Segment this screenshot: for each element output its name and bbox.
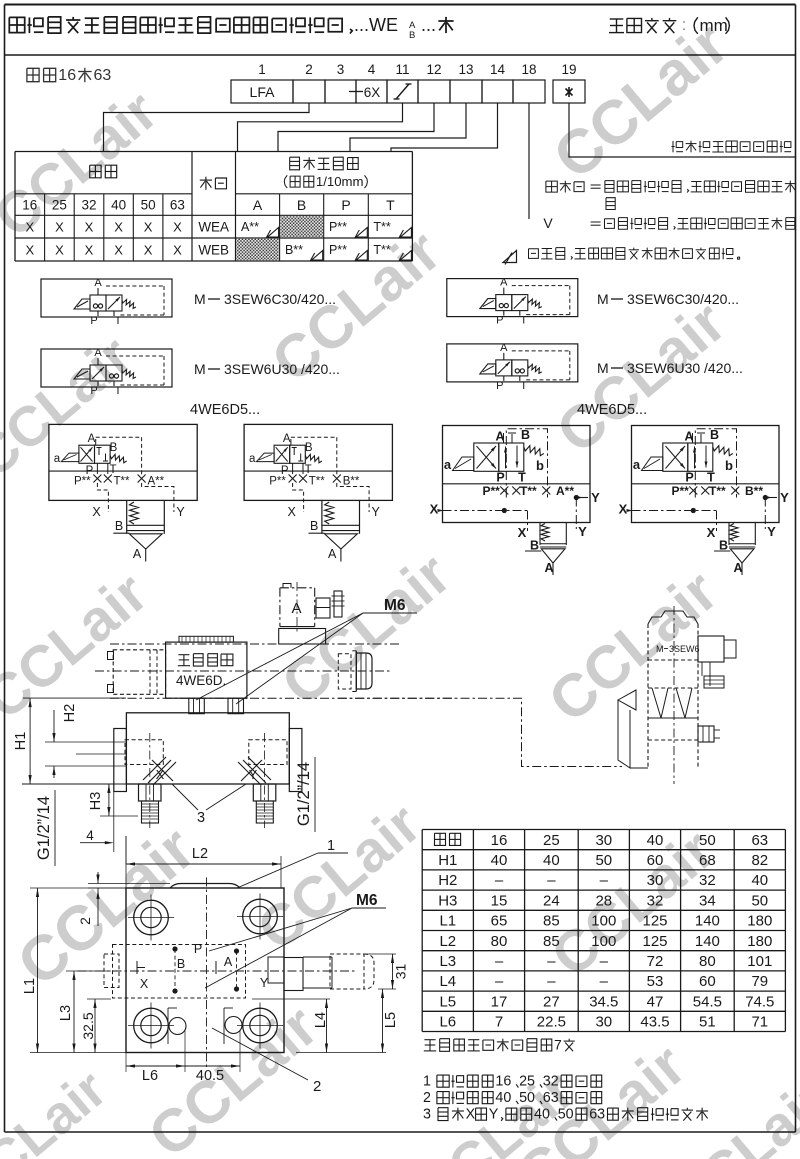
svg-text:68: 68	[699, 852, 716, 869]
svg-text:P: P	[194, 942, 202, 956]
svg-text:12: 12	[426, 62, 441, 77]
svg-text:79: 79	[751, 973, 768, 990]
svg-text:X: X	[518, 525, 527, 540]
svg-text:P**: P**	[269, 476, 286, 488]
svg-text:25: 25	[52, 198, 67, 213]
svg-text:...: ...	[421, 15, 436, 35]
svg-text:Y: Y	[249, 767, 258, 782]
svg-text:30: 30	[647, 872, 664, 889]
svg-text:40: 40	[495, 1090, 511, 1106]
svg-text:WEA: WEA	[198, 220, 229, 235]
svg-text:T: T	[115, 315, 122, 327]
svg-text:4WE6D5...: 4WE6D5...	[577, 402, 647, 418]
svg-text:16: 16	[491, 832, 508, 849]
svg-text:16: 16	[495, 1074, 511, 1090]
svg-text:15: 15	[491, 892, 508, 909]
svg-text:P**: P**	[483, 484, 501, 498]
svg-text:CCLair: CCLair	[0, 560, 160, 732]
svg-text:X: X	[92, 505, 101, 519]
svg-text:51: 51	[699, 1014, 716, 1031]
svg-text:L6: L6	[142, 1068, 158, 1084]
svg-text:3: 3	[197, 810, 205, 826]
svg-text:74.5: 74.5	[745, 993, 774, 1010]
svg-text:A: A	[291, 600, 301, 617]
svg-text:40.5: 40.5	[196, 1068, 224, 1084]
svg-text:H3: H3	[88, 792, 104, 811]
svg-text:H3: H3	[438, 892, 457, 909]
svg-text:25: 25	[519, 1074, 535, 1090]
svg-text:A: A	[94, 347, 102, 359]
svg-text:B**: B**	[343, 476, 360, 488]
svg-text:3SEW6C30/420...: 3SEW6C30/420...	[627, 291, 739, 307]
svg-text:50: 50	[519, 1090, 535, 1106]
svg-text:27: 27	[543, 993, 560, 1010]
svg-text:CCLair: CCLair	[0, 1059, 118, 1159]
svg-text:65: 65	[491, 913, 508, 930]
svg-text:4: 4	[86, 828, 94, 843]
svg-text:B: B	[521, 428, 530, 442]
svg-text:T: T	[305, 464, 312, 476]
svg-text:A: A	[94, 277, 102, 289]
svg-text:Y: Y	[767, 524, 776, 539]
svg-text:60: 60	[699, 973, 716, 990]
svg-text:A: A	[500, 342, 508, 354]
svg-text:32: 32	[699, 872, 716, 889]
svg-text:P**: P**	[329, 220, 347, 234]
svg-text:T: T	[707, 471, 715, 485]
svg-text:40: 40	[543, 852, 560, 869]
svg-text:X: X	[25, 243, 34, 258]
svg-text:L3: L3	[58, 1005, 74, 1021]
svg-text:X: X	[619, 502, 628, 517]
svg-text:X: X	[114, 220, 123, 235]
svg-text:CCLair: CCLair	[541, 9, 741, 193]
svg-text:Y: Y	[591, 490, 600, 505]
svg-text:–: –	[495, 872, 504, 889]
svg-text:X: X	[85, 220, 94, 235]
svg-text:3: 3	[337, 62, 345, 77]
svg-text:3: 3	[423, 1107, 431, 1123]
svg-text:25: 25	[543, 832, 560, 849]
svg-text:30: 30	[595, 832, 612, 849]
svg-text:L4: L4	[313, 1012, 329, 1028]
svg-text:T**: T**	[709, 484, 726, 498]
svg-text:M: M	[194, 291, 206, 307]
svg-text:a: a	[444, 457, 452, 472]
svg-text:2: 2	[313, 1078, 321, 1095]
svg-text:...WE: ...WE	[354, 15, 398, 35]
svg-text:34: 34	[699, 892, 716, 909]
svg-text:P: P	[496, 380, 503, 392]
svg-text:125: 125	[642, 913, 667, 930]
svg-text:X: X	[173, 243, 182, 258]
svg-text:L6: L6	[439, 1014, 456, 1031]
svg-text:X: X	[144, 220, 153, 235]
svg-text:M: M	[597, 360, 609, 376]
svg-text:M: M	[656, 644, 664, 654]
svg-text:80: 80	[699, 953, 716, 970]
svg-text:CCLair: CCLair	[544, 288, 738, 466]
svg-text:40: 40	[647, 832, 664, 849]
svg-text:P**: P**	[672, 484, 690, 498]
svg-text:A: A	[544, 561, 553, 575]
svg-text:40: 40	[111, 198, 126, 213]
svg-text:mm: mm	[700, 16, 728, 35]
svg-text:M: M	[597, 291, 609, 307]
svg-text:B**: B**	[745, 484, 763, 498]
svg-text:G1/2”/14: G1/2”/14	[35, 796, 53, 860]
svg-text:T**: T**	[309, 476, 326, 488]
svg-text:P: P	[685, 471, 693, 485]
svg-text:L3: L3	[439, 953, 456, 970]
svg-text:7: 7	[495, 1014, 503, 1031]
svg-text:–: –	[495, 973, 504, 990]
svg-text:H1: H1	[438, 852, 457, 869]
svg-text:140: 140	[695, 933, 720, 950]
svg-text:X: X	[140, 977, 149, 991]
svg-text:72: 72	[647, 953, 664, 970]
svg-text:32: 32	[543, 1074, 559, 1090]
svg-text:A: A	[328, 547, 337, 561]
svg-text:B: B	[409, 30, 415, 41]
svg-text:b: b	[725, 458, 733, 473]
svg-text:63: 63	[751, 832, 768, 849]
svg-text:CCLair: CCLair	[0, 323, 143, 489]
svg-text:A**: A**	[241, 220, 259, 234]
svg-text:L4: L4	[439, 973, 456, 990]
svg-text:50: 50	[558, 1107, 574, 1123]
svg-text:100: 100	[591, 913, 616, 930]
svg-text:A: A	[500, 277, 508, 289]
svg-text:54.5: 54.5	[693, 993, 722, 1010]
svg-text:L2: L2	[192, 846, 208, 862]
svg-text:X: X	[85, 243, 94, 258]
svg-text:X: X	[55, 220, 64, 235]
svg-text:40: 40	[751, 872, 768, 889]
svg-text:L1: L1	[439, 913, 456, 930]
svg-text:82: 82	[751, 852, 768, 869]
svg-text:A: A	[283, 433, 291, 445]
svg-text:T**: T**	[114, 476, 131, 488]
svg-text:53: 53	[647, 973, 664, 990]
svg-text:P: P	[496, 471, 504, 485]
svg-text:Y: Y	[489, 1107, 499, 1123]
svg-text:Y: Y	[176, 505, 185, 519]
svg-text:24: 24	[543, 892, 560, 909]
svg-text:B: B	[297, 197, 306, 213]
svg-text:H1: H1	[13, 732, 29, 751]
svg-text:28: 28	[595, 892, 612, 909]
svg-text:X: X	[707, 525, 716, 540]
svg-text:2: 2	[305, 62, 313, 77]
svg-text:4: 4	[368, 62, 376, 77]
svg-text:T**: T**	[373, 220, 391, 234]
svg-text:Y: Y	[578, 524, 587, 539]
svg-text:–: –	[600, 953, 609, 970]
svg-text:63: 63	[543, 1090, 559, 1106]
svg-text:T: T	[115, 385, 122, 397]
svg-text:–: –	[547, 973, 556, 990]
svg-text:X: X	[466, 1107, 476, 1123]
svg-text:3SEW6U30 /420...: 3SEW6U30 /420...	[627, 360, 743, 376]
svg-text:A: A	[253, 197, 263, 213]
svg-text:1: 1	[423, 1074, 431, 1090]
svg-text:T: T	[109, 464, 116, 476]
svg-text:A: A	[133, 547, 142, 561]
svg-text:14: 14	[490, 62, 506, 77]
svg-text:WEB: WEB	[198, 243, 229, 258]
svg-text:X: X	[144, 243, 153, 258]
svg-text:Y: Y	[780, 490, 789, 505]
svg-text:1/10mm: 1/10mm	[316, 174, 364, 189]
svg-text:X: X	[173, 220, 182, 235]
svg-text:34.5: 34.5	[589, 993, 618, 1010]
svg-text:P: P	[90, 385, 97, 397]
svg-text:L2: L2	[439, 933, 456, 950]
svg-text:B: B	[115, 519, 123, 533]
svg-text:b: b	[536, 458, 544, 473]
svg-text:L5: L5	[439, 993, 456, 1010]
svg-text:X: X	[25, 220, 34, 235]
svg-text:16: 16	[58, 67, 76, 84]
svg-text:63: 63	[170, 198, 185, 213]
svg-text:H2: H2	[438, 872, 457, 889]
svg-text:50: 50	[699, 832, 716, 849]
svg-text:50: 50	[141, 198, 156, 213]
svg-text:40: 40	[491, 852, 508, 869]
svg-text:B: B	[310, 519, 318, 533]
svg-text:180: 180	[747, 913, 772, 930]
svg-text:1: 1	[327, 838, 335, 854]
svg-text:X: X	[55, 243, 64, 258]
svg-text:B: B	[177, 957, 185, 971]
svg-text:11: 11	[395, 62, 409, 77]
svg-text:50: 50	[595, 852, 612, 869]
svg-text:18: 18	[521, 62, 536, 77]
svg-text:125: 125	[642, 933, 667, 950]
svg-text:31: 31	[393, 964, 409, 980]
svg-text:P**: P**	[74, 476, 91, 488]
svg-text:30: 30	[595, 1014, 612, 1031]
svg-text:P: P	[341, 197, 350, 213]
svg-text:X: X	[430, 502, 439, 517]
svg-text:B**: B**	[285, 243, 303, 257]
svg-text:P: P	[90, 315, 97, 327]
svg-text:T: T	[520, 315, 527, 327]
svg-text:T: T	[518, 471, 526, 485]
svg-text:32: 32	[81, 198, 96, 213]
svg-text:4WE6D5...: 4WE6D5...	[190, 402, 260, 418]
svg-text:T**: T**	[520, 484, 537, 498]
svg-text:T**: T**	[373, 243, 391, 257]
svg-text:M: M	[194, 361, 206, 377]
svg-text:a: a	[249, 453, 256, 465]
svg-text:–: –	[600, 973, 609, 990]
svg-text:B: B	[530, 539, 539, 553]
svg-text:B: B	[719, 539, 728, 553]
svg-text:7: 7	[554, 1037, 562, 1053]
svg-text:A**: A**	[556, 484, 574, 498]
svg-text:63: 63	[589, 1107, 605, 1123]
svg-text:63: 63	[94, 67, 112, 84]
svg-text:V: V	[543, 215, 553, 231]
svg-text:X: X	[156, 767, 165, 782]
svg-text:T: T	[520, 380, 527, 392]
svg-text:2: 2	[77, 917, 93, 925]
svg-text:13: 13	[458, 62, 473, 77]
svg-text:50: 50	[751, 892, 768, 909]
svg-text:–: –	[547, 953, 556, 970]
svg-text:H2: H2	[62, 704, 78, 723]
svg-text:19: 19	[561, 62, 576, 77]
svg-text:3SEW6U30 /420...: 3SEW6U30 /420...	[224, 361, 340, 377]
svg-text:A: A	[733, 561, 742, 575]
svg-text:47: 47	[647, 993, 664, 1010]
svg-text:P**: P**	[329, 243, 347, 257]
svg-text:A: A	[88, 433, 96, 445]
svg-text:B: B	[710, 428, 719, 442]
svg-text:180: 180	[747, 933, 772, 950]
svg-text:100: 100	[591, 933, 616, 950]
svg-text:4WE6D.: 4WE6D.	[176, 673, 226, 688]
svg-text:Y: Y	[260, 976, 269, 990]
svg-text:85: 85	[543, 913, 560, 930]
svg-text:B: B	[305, 442, 313, 454]
svg-text:6X: 6X	[364, 85, 381, 100]
svg-text:L1: L1	[22, 978, 38, 994]
svg-text:71: 71	[751, 1014, 768, 1031]
svg-text:85: 85	[543, 933, 560, 950]
svg-text:G1/2”/14: G1/2”/14	[295, 762, 313, 826]
svg-text:B: B	[110, 442, 118, 454]
svg-text:Y: Y	[372, 505, 381, 519]
svg-text:2: 2	[423, 1090, 431, 1106]
svg-text:1: 1	[258, 62, 266, 77]
svg-text:43.5: 43.5	[640, 1014, 669, 1031]
svg-text:40: 40	[534, 1107, 550, 1123]
svg-text:22.5: 22.5	[537, 1014, 566, 1031]
svg-text:L5: L5	[383, 1012, 399, 1028]
svg-text:17: 17	[491, 993, 508, 1010]
svg-text:a: a	[633, 457, 641, 472]
svg-text:60: 60	[647, 852, 664, 869]
svg-text:–: –	[547, 872, 556, 889]
svg-text:101: 101	[747, 953, 772, 970]
svg-text:16: 16	[22, 198, 37, 213]
svg-text:X: X	[288, 505, 297, 519]
svg-text:T: T	[386, 197, 395, 213]
svg-text:–: –	[495, 953, 504, 970]
svg-text:–: –	[600, 872, 609, 889]
svg-text:A**: A**	[148, 476, 165, 488]
svg-text:LFA: LFA	[250, 84, 276, 100]
svg-text:A: A	[224, 955, 233, 969]
svg-text:CCLair: CCLair	[269, 540, 463, 718]
svg-text:M6: M6	[356, 892, 378, 909]
svg-text:32.5: 32.5	[80, 1012, 96, 1039]
svg-text:M6: M6	[384, 597, 406, 614]
svg-text:140: 140	[695, 913, 720, 930]
svg-text:P: P	[496, 315, 503, 327]
svg-text:X: X	[114, 243, 123, 258]
svg-text:3SEW6C30/420...: 3SEW6C30/420...	[224, 291, 336, 307]
svg-text:80: 80	[491, 933, 508, 950]
svg-text:32: 32	[647, 892, 664, 909]
svg-text:a: a	[54, 453, 61, 465]
